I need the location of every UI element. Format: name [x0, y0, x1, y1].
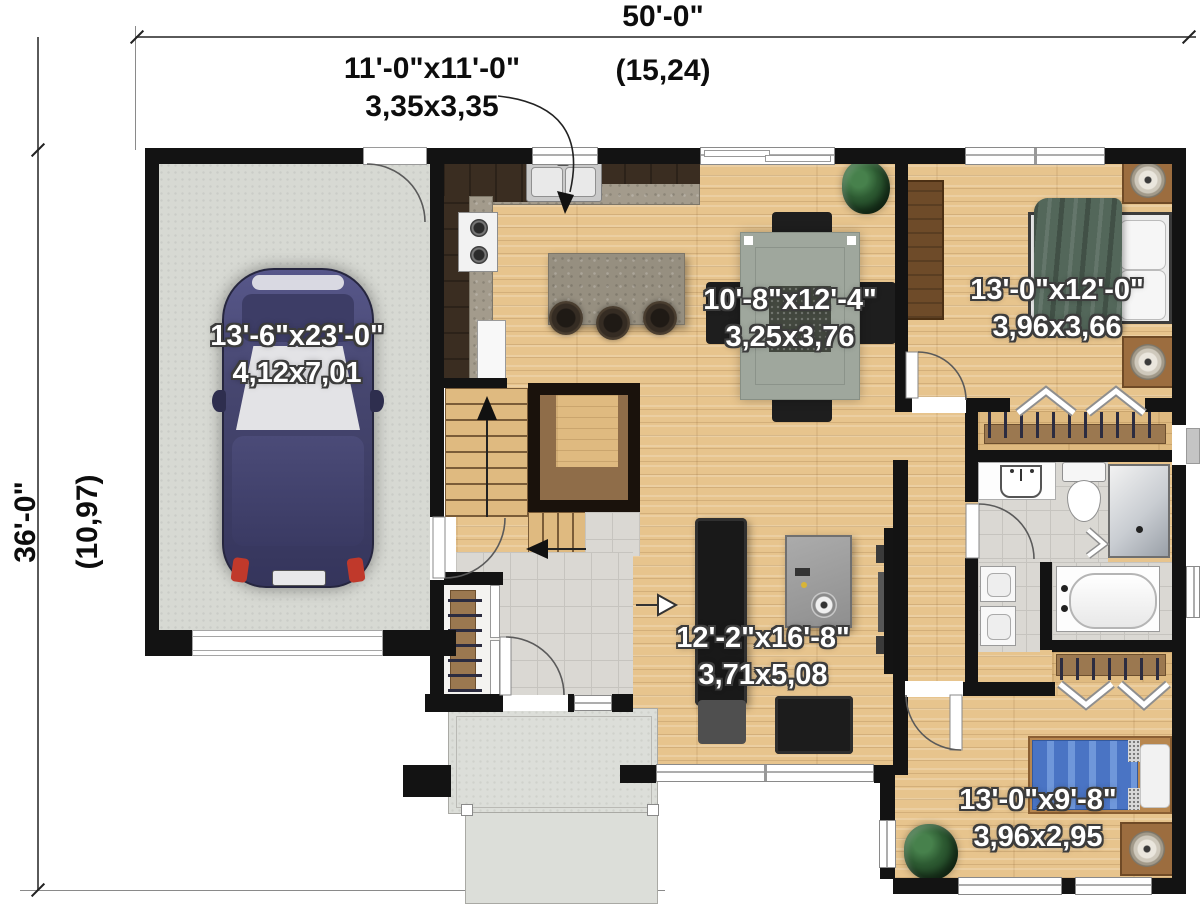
door-arc-garage-side: [367, 164, 425, 222]
annotation-overlay: [0, 0, 1200, 910]
label-living: 12'-2"x16'-8" 3,71x5,08: [650, 620, 876, 694]
primary-closet-chevron-outline: [1088, 391, 1144, 413]
door-leaf-primary: [906, 352, 918, 398]
dining-metric: 3,25x3,76: [680, 319, 900, 356]
door-leaf-stairs-garage: [433, 517, 445, 578]
door-leaf-bedroom2: [950, 695, 962, 750]
floor-plan-canvas: 50'-0" (15,24) 36'-0" (10,97): [0, 0, 1200, 910]
kitchen-imperial: 11'-0"x11'-0": [327, 50, 537, 88]
primary-closet-chevron-outline: [1018, 391, 1074, 413]
label-primary-bedroom: 13'-0"x12'-0" 3,96x3,66: [947, 272, 1167, 346]
primary-bedroom-metric: 3,96x3,66: [947, 309, 1167, 346]
label-dining: 10'-8"x12'-4" 3,25x3,76: [680, 282, 900, 356]
door-leaf-bath: [966, 504, 979, 558]
door-leaf-front: [500, 637, 511, 695]
door-arc-stairs-garage: [445, 518, 505, 578]
garage-metric: 4,12x7,01: [197, 355, 397, 392]
living-metric: 3,71x5,08: [650, 657, 876, 694]
door-arc-front: [506, 637, 564, 695]
stairs-down-arrow-head: [526, 539, 548, 559]
second-bedroom-metric: 3,96x2,95: [928, 819, 1148, 856]
entry-arrow-head: [658, 595, 676, 615]
garage-imperial: 13'-6"x23'-0": [197, 318, 397, 355]
stairs-up-arrow-head: [477, 396, 497, 420]
second-bedroom-imperial: 13'-0"x9'-8": [928, 782, 1148, 819]
dining-imperial: 10'-8"x12'-4": [680, 282, 900, 319]
door-arc-primary: [918, 352, 966, 400]
kitchen-label-arrowhead: [557, 191, 574, 214]
label-kitchen: 11'-0"x11'-0" 3,35x3,35: [327, 50, 537, 126]
label-second-bedroom: 13'-0"x9'-8" 3,96x2,95: [928, 782, 1148, 856]
living-imperial: 12'-2"x16'-8": [650, 620, 876, 657]
kitchen-metric: 3,35x3,35: [327, 88, 537, 126]
door-arc-bath: [979, 504, 1034, 559]
label-garage: 13'-6"x23'-0" 4,12x7,01: [197, 318, 397, 392]
primary-bedroom-imperial: 13'-0"x12'-0": [947, 272, 1167, 309]
